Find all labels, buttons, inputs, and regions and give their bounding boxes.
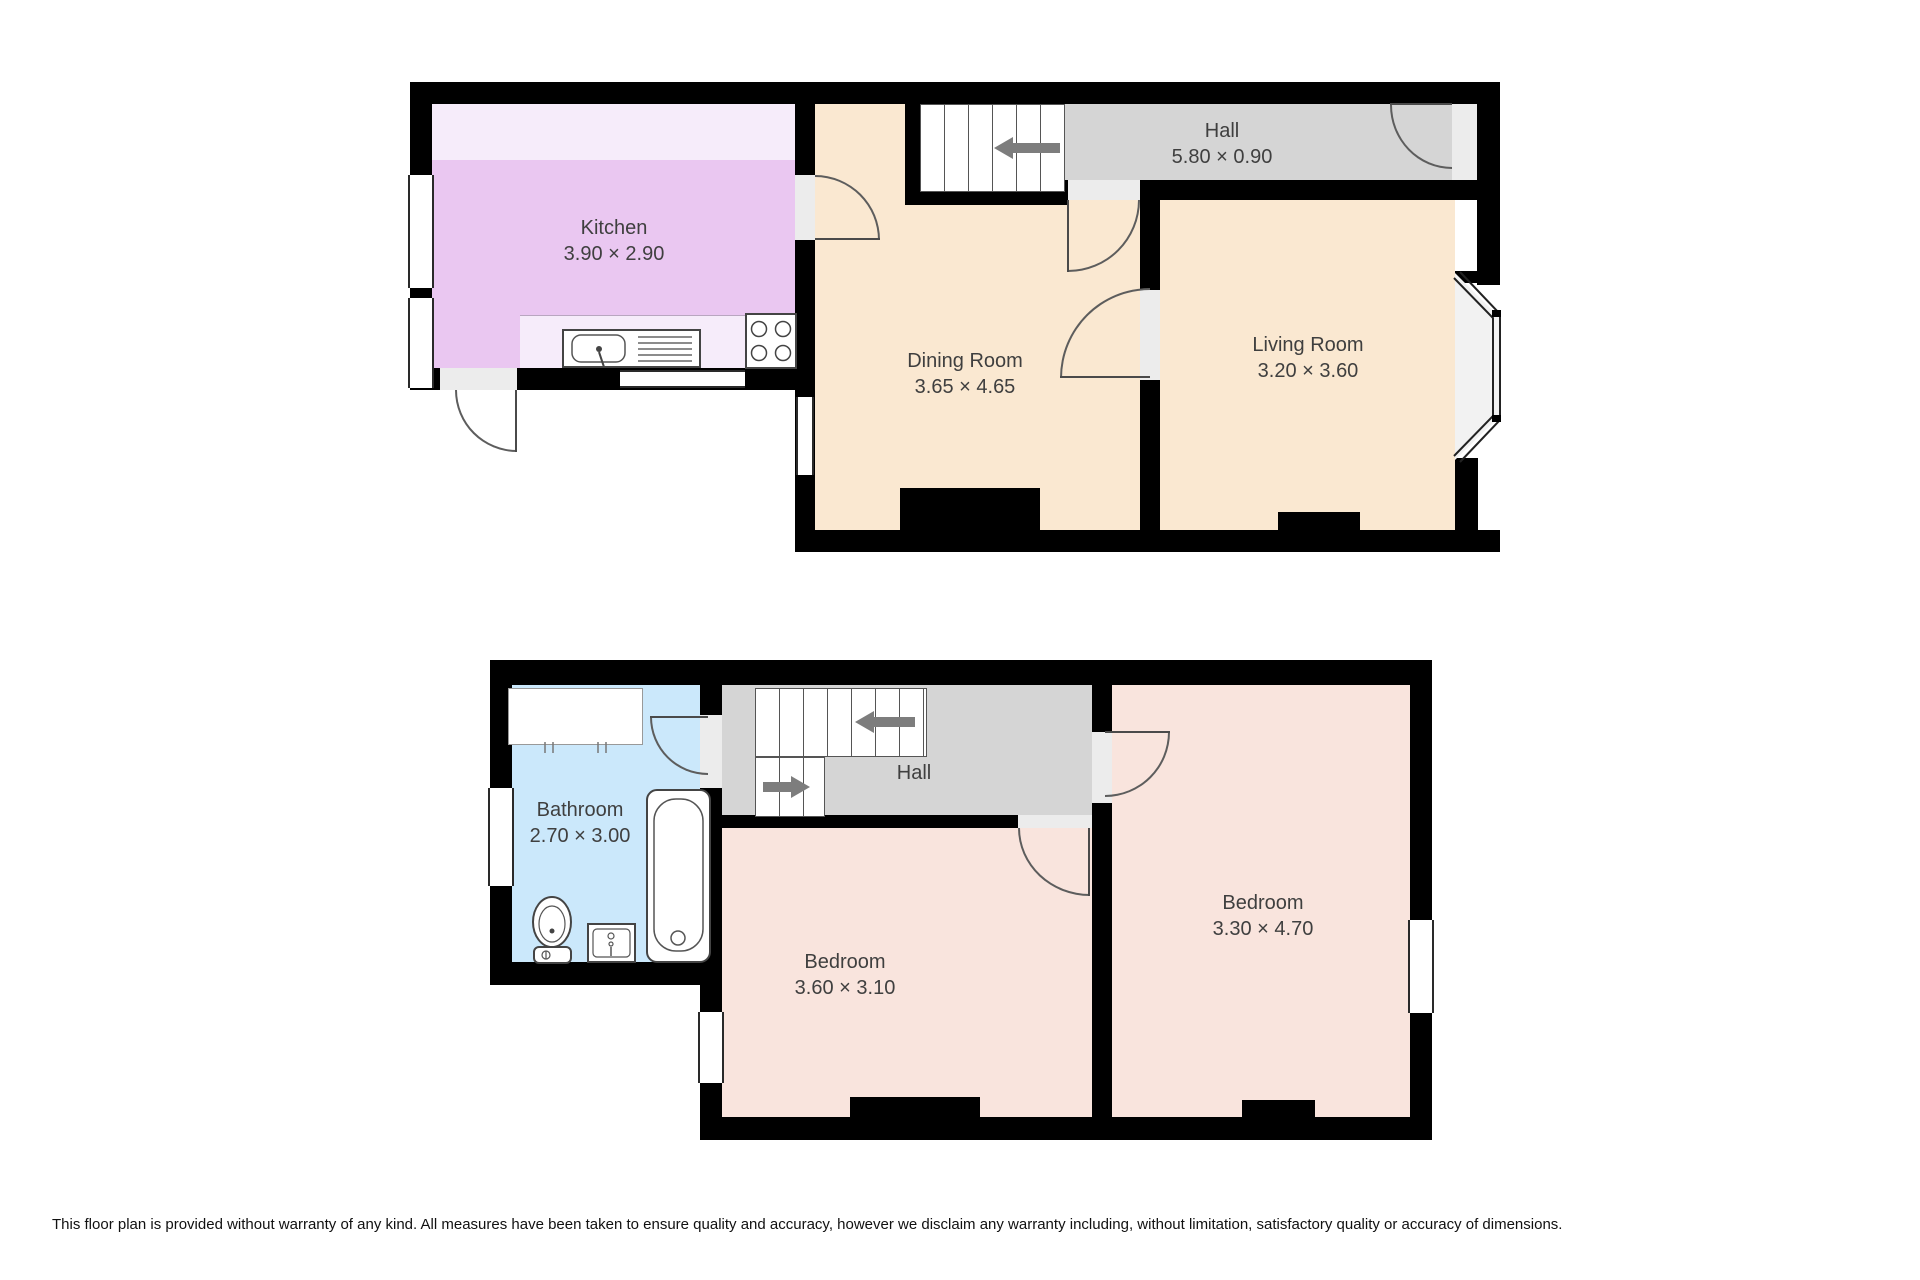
bathroom-counter: [508, 688, 643, 745]
kitchen-back-door-opening: [440, 368, 517, 390]
dining-chimney-breast: [900, 488, 1040, 530]
wall: [795, 530, 1500, 552]
kitchen-floor-bottom-left: [432, 315, 520, 368]
hall-first-label: Hall: [897, 760, 931, 786]
kitchen-counter-top-area: [432, 104, 795, 161]
bathroom-window: [488, 788, 514, 886]
stairs-up-arrow-icon: [994, 137, 1013, 159]
room-name: Living Room: [1252, 332, 1363, 358]
kitchen-dining-door-leaf: [815, 238, 880, 240]
wall: [905, 104, 920, 205]
room-name: Hall: [897, 760, 931, 786]
hall-dining-door-opening: [1068, 180, 1140, 200]
bedroom-small-label: Bedroom 3.60 × 3.10: [795, 949, 896, 1001]
bedroom-large-label: Bedroom 3.30 × 4.70: [1213, 890, 1314, 942]
hall-ground-label: Hall 5.80 × 0.90: [1172, 118, 1273, 170]
room-name: Kitchen: [564, 215, 665, 241]
stairs-up-arrow-icon: [1012, 143, 1060, 153]
room-dims: 2.70 × 3.00: [530, 823, 631, 849]
dining-room-label: Dining Room 3.65 × 4.65: [907, 348, 1023, 400]
kitchen-window: [408, 298, 434, 388]
room-name: Bedroom: [795, 949, 896, 975]
bedroom-small-chimney-breast: [850, 1097, 980, 1117]
kitchen-rear-window: [620, 370, 745, 388]
wall: [795, 82, 815, 175]
disclaimer-text: This floor plan is provided without warr…: [52, 1216, 1562, 1233]
bathroom-door-leaf: [650, 716, 708, 718]
kitchen-dining-door-opening: [795, 175, 815, 240]
bathroom-label: Bathroom 2.70 × 3.00: [530, 797, 631, 849]
wall: [1477, 82, 1500, 285]
wall: [700, 1117, 1432, 1140]
stairs-arrow-icon: [763, 782, 791, 792]
room-dims: 3.20 × 3.60: [1252, 358, 1363, 384]
stairs-arrow-icon: [873, 717, 915, 727]
living-room-label: Living Room 3.20 × 3.60: [1252, 332, 1363, 384]
kitchen-label: Kitchen 3.90 × 2.90: [564, 215, 665, 267]
wall: [795, 240, 815, 390]
room-name: Dining Room: [907, 348, 1023, 374]
kitchen-back-door-arc: [455, 390, 517, 452]
bay-window: [1454, 272, 1501, 462]
bedroom-small-door-opening: [1018, 815, 1092, 828]
wall: [410, 82, 1500, 104]
bedroom-small-door-leaf: [1088, 828, 1090, 896]
room-dims: 3.65 × 4.65: [907, 374, 1023, 400]
room-dims: 3.90 × 2.90: [564, 241, 665, 267]
wall: [1455, 271, 1478, 283]
dining-living-door-leaf: [1060, 376, 1150, 378]
wall: [490, 660, 1432, 685]
stairs-arrow-icon: [791, 776, 810, 798]
wall: [1410, 660, 1432, 1140]
front-door-leaf: [1390, 103, 1452, 105]
stairs-arrow-icon: [855, 711, 874, 733]
kitchen-counter-bottom-area: [520, 315, 795, 369]
room-name: Bathroom: [530, 797, 631, 823]
room-dims: 3.60 × 3.10: [795, 975, 896, 1001]
bedroom-large-door-leaf: [1105, 731, 1170, 733]
wall: [905, 192, 1068, 205]
room-dims: 5.80 × 0.90: [1172, 144, 1273, 170]
room-name: Bedroom: [1213, 890, 1314, 916]
kitchen-back-door-leaf: [515, 390, 517, 452]
bedroom-small-window: [698, 1012, 724, 1083]
room-dims: 3.30 × 4.70: [1213, 916, 1314, 942]
kitchen-window: [408, 175, 434, 288]
hall-dining-door-leaf: [1067, 200, 1069, 272]
bedroom-large-chimney-breast: [1242, 1100, 1315, 1117]
floor-plan-canvas: Kitchen 3.90 × 2.90 Dining Room 3.65 × 4…: [0, 0, 1920, 1280]
front-door-opening: [1452, 104, 1477, 180]
room-name: Hall: [1172, 118, 1273, 144]
bedroom-large-window: [1408, 920, 1434, 1013]
dining-side-window: [796, 397, 814, 475]
living-chimney-breast: [1278, 512, 1360, 530]
wall: [490, 962, 722, 985]
wall: [1455, 458, 1478, 552]
